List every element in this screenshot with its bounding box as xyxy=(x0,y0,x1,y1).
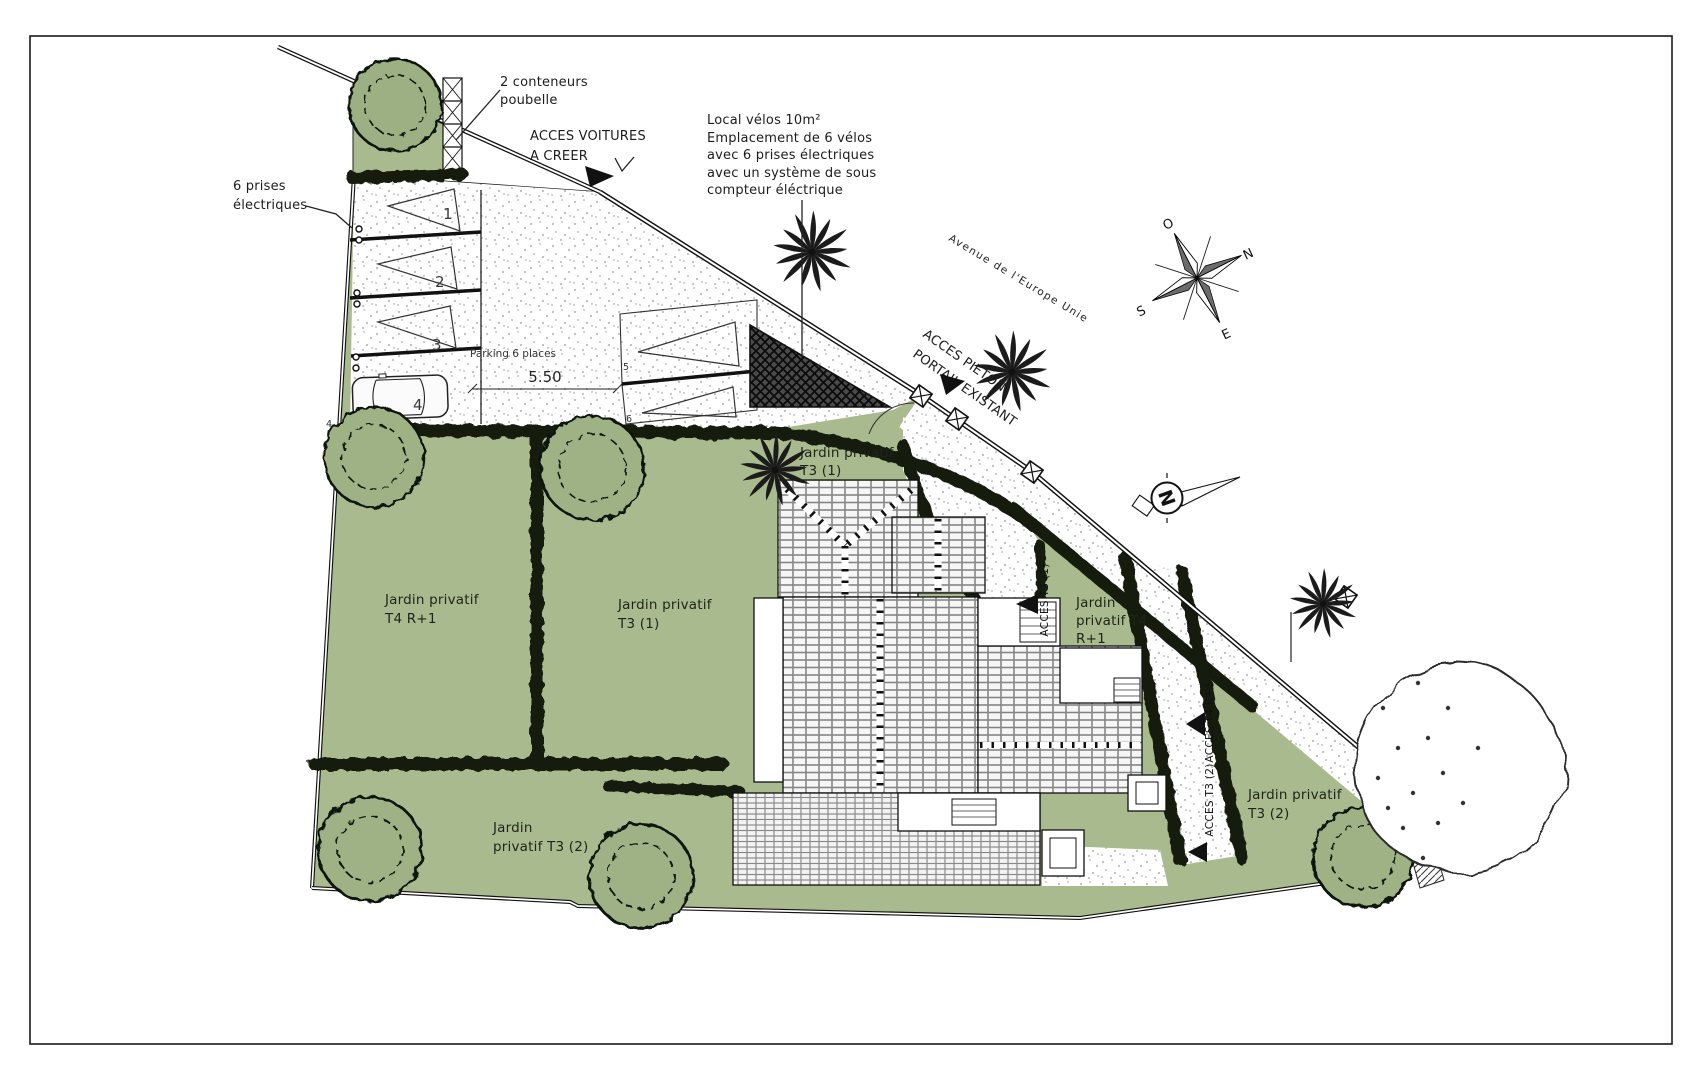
bike-label-1: Local vélos 10m² xyxy=(707,113,821,128)
garden-right-t4-1: Jardin xyxy=(1075,595,1116,611)
sockets-label-1: 6 prises xyxy=(233,179,286,194)
west-terrace xyxy=(754,598,783,782)
access-t3-2-label: ACCES T3 (2) xyxy=(1204,763,1216,836)
access-cars-label-1: ACCES VOITURES xyxy=(530,129,646,144)
garden-left-1: Jardin privatif xyxy=(384,592,480,608)
garden-top-1: Jardin privatif xyxy=(799,445,895,461)
access-cars-label-2: A CREER xyxy=(530,149,588,164)
bush-tree xyxy=(349,59,441,151)
garden-left-2: T4 R+1 xyxy=(384,611,437,627)
bush-tree xyxy=(324,407,424,507)
stall-number-5: 5 xyxy=(623,362,629,373)
large-tree xyxy=(1354,664,1562,872)
containers-label-2: poubelle xyxy=(500,93,558,108)
parking-label: Parking 6 places xyxy=(470,348,556,360)
site-plan-drawing: ACCES PIETON PORTAIL EXISTANT xyxy=(0,0,1702,1080)
garden-bottom-1: Jardin xyxy=(492,820,533,836)
garden-mid-1: Jardin privatif xyxy=(617,597,713,613)
garden-top-2: T3 (1) xyxy=(799,463,841,479)
site-plan-page: ACCES PIETON PORTAIL EXISTANT xyxy=(0,0,1702,1080)
garden-mid-2: T3 (1) xyxy=(617,616,659,632)
dimension-label: 5.50 xyxy=(528,368,561,386)
bike-label-3: avec 6 prises électriques xyxy=(707,148,874,163)
stall-number-2: 2 xyxy=(435,273,445,291)
garden-bottom-2: privatif T3 (2) xyxy=(493,839,588,855)
bike-label-4: avec un système de sous xyxy=(707,166,876,181)
stall-number-6: 6 xyxy=(626,414,632,425)
stall-number-4: 4 xyxy=(413,396,423,414)
bush-tree xyxy=(318,797,422,901)
bike-label-2: Emplacement de 6 vélos xyxy=(707,131,872,146)
garden-east-1: Jardin privatif xyxy=(1247,787,1343,803)
containers-label-1: 2 conteneurs xyxy=(500,75,588,90)
trash-containers xyxy=(443,78,462,170)
garden-east-2: T3 (2) xyxy=(1247,806,1289,822)
stall-number-4-small: 4 xyxy=(326,419,332,430)
bike-label-5: compteur éléctrique xyxy=(707,183,843,198)
sockets-label-2: électriques xyxy=(233,198,307,213)
hedge xyxy=(608,786,740,792)
garden-right-t4-3: R+1 xyxy=(1076,631,1106,647)
stall-number-3: 3 xyxy=(432,336,442,354)
garden-right-t4-2: privatif T4 xyxy=(1076,613,1147,629)
bush-tree xyxy=(540,416,644,520)
access-t4-label: ACCES T4 R+1 xyxy=(1204,681,1216,762)
hedge xyxy=(352,174,462,178)
access-t3-1-label: ACCES T3 (1) xyxy=(1039,563,1051,636)
stall-number-1: 1 xyxy=(443,205,453,223)
bush-tree xyxy=(589,824,693,928)
